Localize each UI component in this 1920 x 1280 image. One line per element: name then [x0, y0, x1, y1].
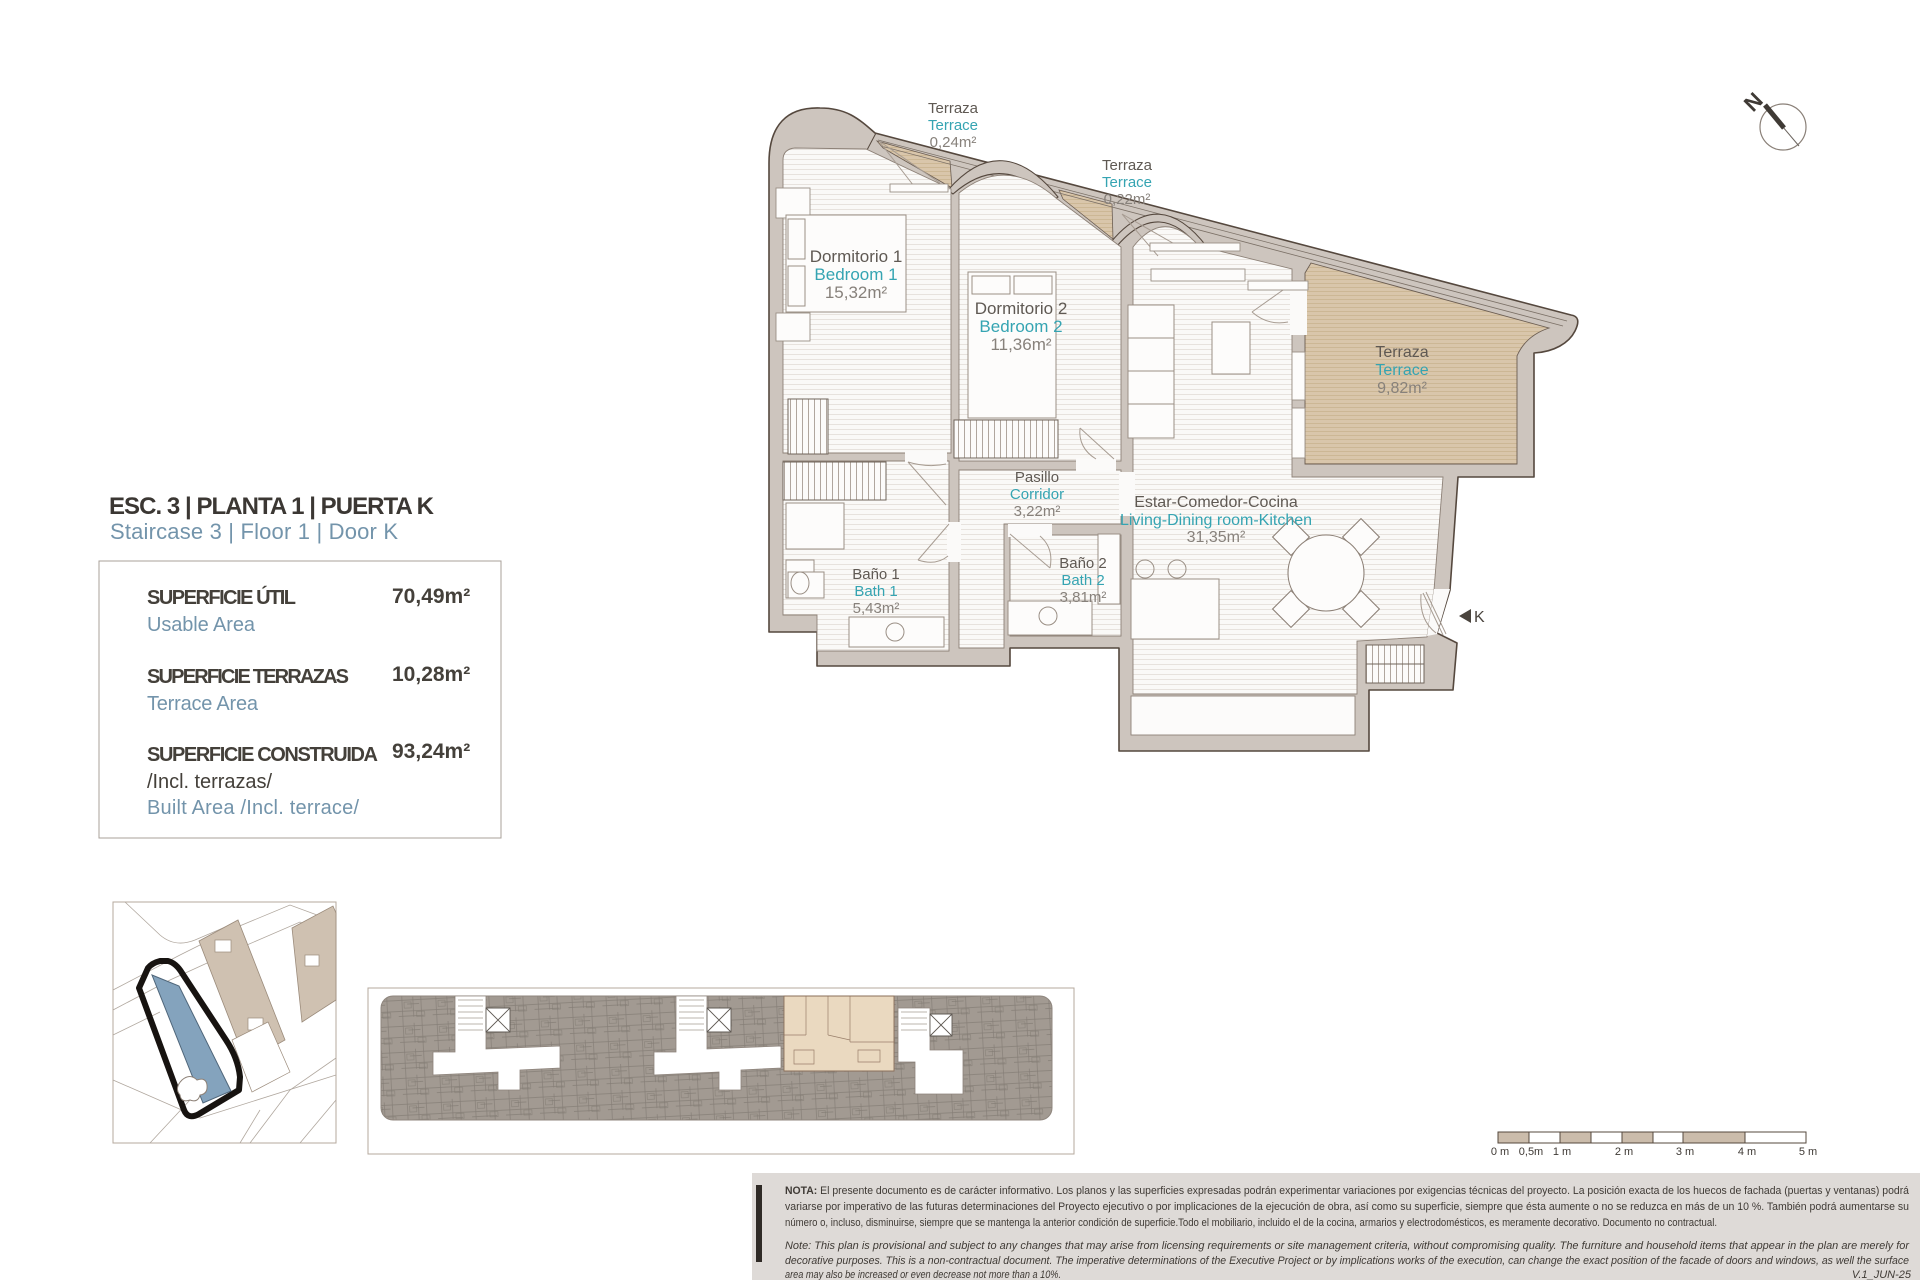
svg-text:SUPERFICIE CONSTRUIDA: SUPERFICIE CONSTRUIDA [147, 744, 378, 766]
svg-text:2 m: 2 m [1615, 1146, 1633, 1158]
svg-text:3,81m²: 3,81m² [1060, 589, 1107, 606]
svg-text:5 m: 5 m [1799, 1146, 1817, 1158]
svg-text:SUPERFICIE ÚTIL: SUPERFICIE ÚTIL [147, 585, 296, 609]
svg-text:número o, incluso, disminuirse: número o, incluso, disminuirse, siempre … [785, 1217, 1717, 1229]
svg-text:Dormitorio 1: Dormitorio 1 [810, 247, 903, 266]
svg-text:/Incl. terrazas/: /Incl. terrazas/ [147, 771, 272, 793]
svg-text:SUPERFICIE TERRAZAS: SUPERFICIE TERRAZAS [147, 666, 349, 688]
svg-text:9,82m²: 9,82m² [1377, 380, 1427, 397]
svg-text:Note: This plan is provisional: Note: This plan is provisional and subje… [785, 1240, 1910, 1252]
svg-text:3 m: 3 m [1676, 1146, 1694, 1158]
svg-text:Bedroom 2: Bedroom 2 [979, 317, 1062, 336]
svg-text:1 m: 1 m [1553, 1146, 1571, 1158]
svg-text:Terraza: Terraza [1375, 344, 1428, 361]
svg-text:4 m: 4 m [1738, 1146, 1756, 1158]
svg-text:Terrace: Terrace [928, 117, 978, 134]
svg-text:0,5m: 0,5m [1519, 1146, 1543, 1158]
svg-text:Baño 2: Baño 2 [1059, 555, 1107, 572]
svg-text:Living-Dining room-Kitchen: Living-Dining room-Kitchen [1120, 512, 1312, 529]
svg-text:Estar-Comedor-Cocina: Estar-Comedor-Cocina [1134, 494, 1298, 511]
svg-text:11,36m²: 11,36m² [990, 335, 1051, 354]
svg-text:0 m: 0 m [1491, 1146, 1509, 1158]
svg-text:Bath 1: Bath 1 [854, 583, 897, 600]
svg-text:K: K [1474, 609, 1485, 626]
svg-text:5,43m²: 5,43m² [853, 600, 900, 617]
svg-text:Staircase 3 | Floor 1 | Door K: Staircase 3 | Floor 1 | Door K [110, 519, 398, 544]
svg-text:Dormitorio 2: Dormitorio 2 [975, 299, 1068, 318]
svg-text:ESC. 3 | PLANTA 1 | PUERTA K: ESC. 3 | PLANTA 1 | PUERTA K [109, 493, 435, 520]
svg-text:V.1_JUN-25: V.1_JUN-25 [1852, 1269, 1912, 1280]
svg-text:Usable Area: Usable Area [147, 614, 256, 636]
svg-text:Terraza: Terraza [928, 100, 979, 117]
svg-text:Terraza: Terraza [1102, 157, 1153, 174]
svg-text:31,35m²: 31,35m² [1187, 529, 1246, 546]
svg-text:Built Area /Incl. terrace/: Built Area /Incl. terrace/ [147, 797, 359, 819]
svg-text:Terrace: Terrace [1375, 362, 1428, 379]
svg-text:area may also be increased or: area may also be increased or even decre… [785, 1269, 1061, 1280]
svg-text:93,24m²: 93,24m² [392, 740, 470, 763]
svg-text:70,49m²: 70,49m² [392, 585, 470, 608]
svg-text:15,32m²: 15,32m² [825, 283, 888, 302]
svg-text:Corridor: Corridor [1010, 486, 1064, 503]
svg-text:Baño 1: Baño 1 [852, 566, 900, 583]
svg-text:Bath 2: Bath 2 [1061, 572, 1104, 589]
svg-text:Bedroom 1: Bedroom 1 [814, 265, 897, 284]
svg-text:3,22m²: 3,22m² [1014, 503, 1061, 520]
svg-text:decorative purposes. This is a: decorative purposes. This is a non-contr… [785, 1255, 1909, 1267]
svg-text:variarse por imperativo de las: variarse por imperativo de las futuras d… [785, 1201, 1909, 1213]
svg-text:0,24m²: 0,24m² [930, 134, 977, 151]
svg-text:10,28m²: 10,28m² [392, 663, 470, 686]
svg-text:Pasillo: Pasillo [1015, 469, 1059, 486]
svg-text:Terrace Area: Terrace Area [147, 693, 259, 715]
svg-text:0,22m²: 0,22m² [1104, 191, 1151, 208]
svg-text:Terrace: Terrace [1102, 174, 1152, 191]
svg-text:NOTA: El presente documento e: NOTA: El presente documento es de caráct… [785, 1185, 1910, 1197]
